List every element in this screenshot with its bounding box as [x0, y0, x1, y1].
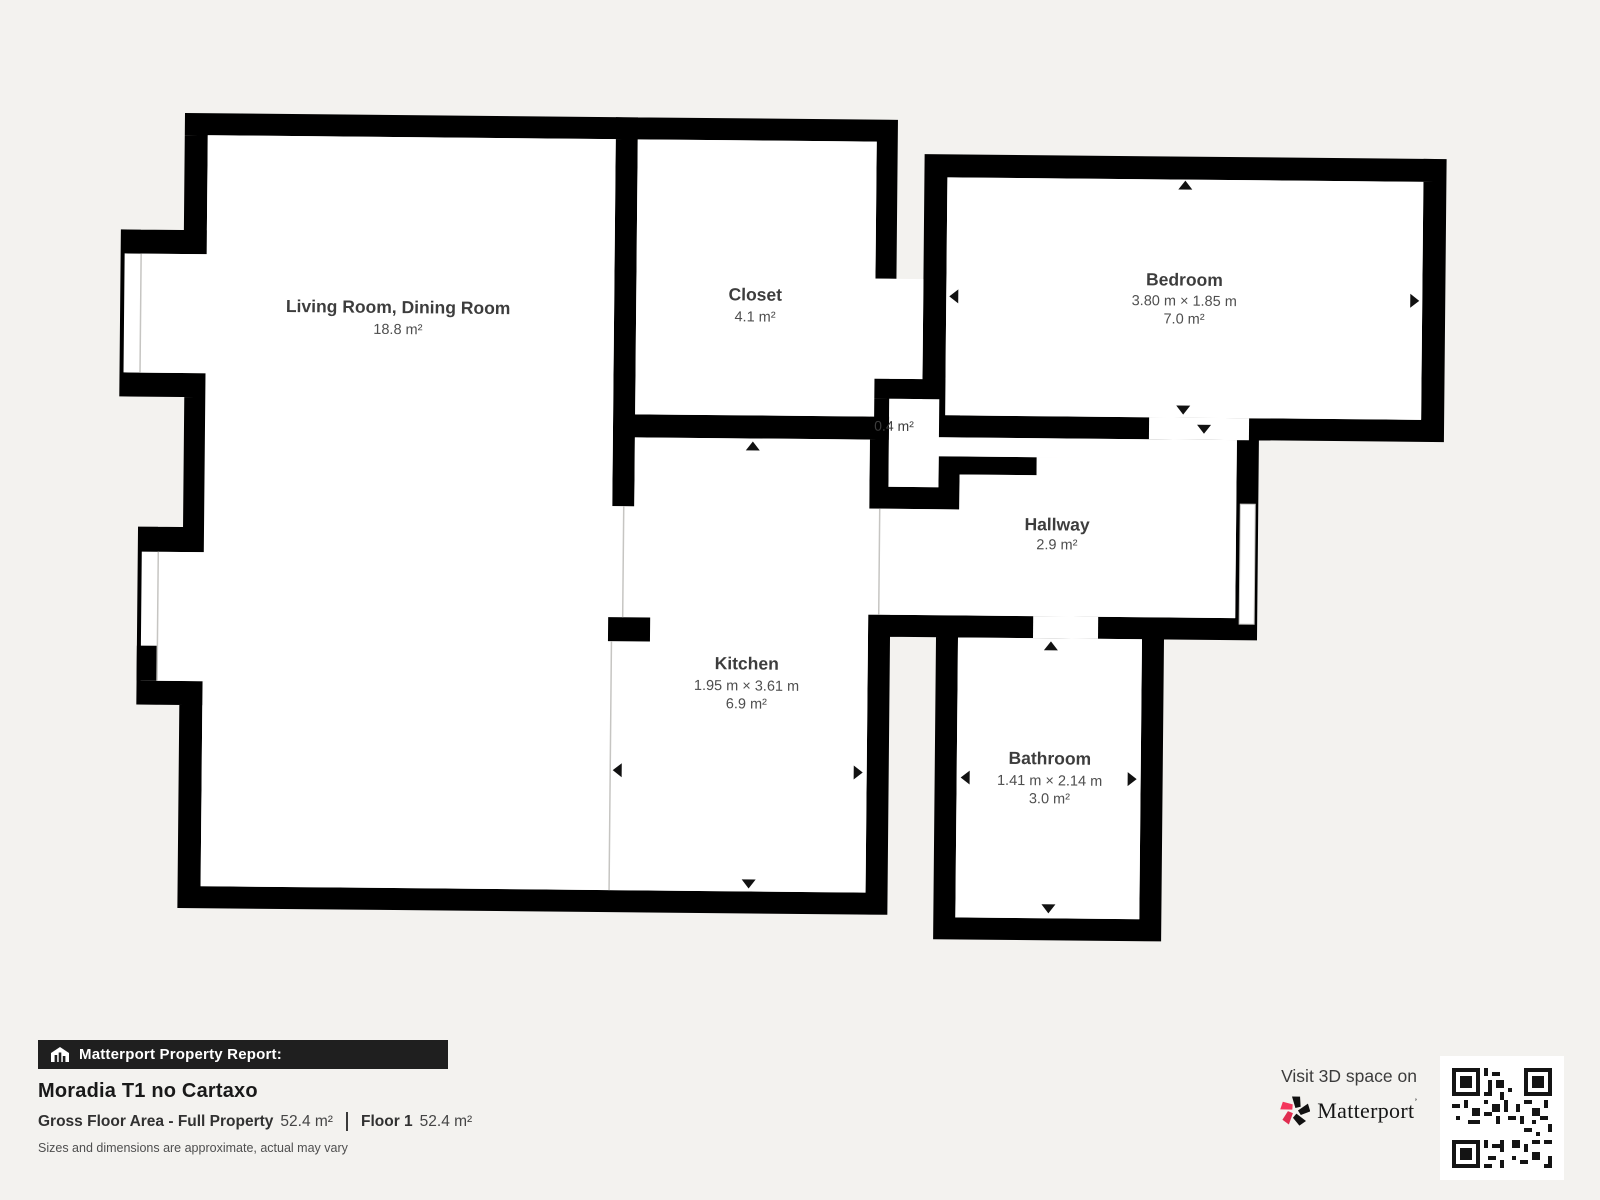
matterport-house-icon	[51, 1047, 69, 1062]
gross-area-label: Gross Floor Area - Full Property	[38, 1113, 273, 1131]
matterport-logo-icon	[1280, 1096, 1310, 1126]
room-label-hallway-area: 2.9 m²	[1036, 537, 1077, 553]
floorplan-canvas: Living Room, Dining Room 18.8 m² Closet …	[0, 0, 1600, 1010]
gross-area-value: 52.4 m²	[280, 1113, 333, 1131]
door-entry	[1239, 504, 1255, 624]
room-label-living-area: 18.8 m²	[373, 322, 422, 338]
room-label-bedroom-name: Bedroom	[1146, 269, 1223, 290]
room-label-closet-name: Closet	[728, 284, 782, 305]
door-bedroom	[1149, 417, 1249, 440]
door-bathroom	[1033, 616, 1098, 639]
room-label-bathroom-area: 3.0 m²	[1029, 791, 1070, 807]
property-title: Moradia T1 no Cartaxo	[38, 1080, 258, 1103]
stats-divider	[346, 1112, 348, 1131]
report-header-bar: Matterport Property Report:	[38, 1040, 448, 1069]
room-label-living-name: Living Room, Dining Room	[286, 296, 511, 318]
visit-3d-cta: Visit 3D space on Matterportʼ	[1254, 1066, 1444, 1126]
matterport-wordmark: Matterportʼ	[1317, 1098, 1417, 1124]
room-label-closet-area: 4.1 m²	[734, 309, 775, 325]
property-report-page: { "floorplan": { "rooms": [ { "id": "liv…	[0, 0, 1600, 1200]
visit-text: Visit 3D space on	[1254, 1066, 1444, 1087]
matterport-logo: Matterportʼ	[1254, 1096, 1444, 1126]
floor-label: Floor 1	[361, 1113, 413, 1131]
room-label-bedroom-dims: 3.80 m × 1.85 m	[1132, 293, 1237, 310]
room-label-bathroom-dims: 1.41 m × 2.14 m	[997, 773, 1102, 790]
floor-value: 52.4 m²	[420, 1113, 473, 1131]
room-label-kitchen-dims: 1.95 m × 3.61 m	[694, 678, 799, 695]
room-label-hallway-name: Hallway	[1024, 514, 1090, 535]
room-label-niche-area: 0.4 m²	[874, 418, 914, 434]
room-label-kitchen-area: 6.9 m²	[726, 696, 767, 712]
report-header-label: Matterport Property Report:	[79, 1046, 282, 1063]
area-stats: Gross Floor Area - Full Property 52.4 m²…	[38, 1112, 472, 1131]
room-label-kitchen-name: Kitchen	[715, 653, 779, 674]
room-label-bathroom-name: Bathroom	[1008, 748, 1091, 769]
room-floors	[118, 134, 1423, 921]
qr-card	[1440, 1056, 1564, 1180]
disclaimer-text: Sizes and dimensions are approximate, ac…	[38, 1141, 348, 1155]
room-label-bedroom-area: 7.0 m²	[1163, 311, 1204, 327]
qr-code	[1440, 1056, 1564, 1180]
